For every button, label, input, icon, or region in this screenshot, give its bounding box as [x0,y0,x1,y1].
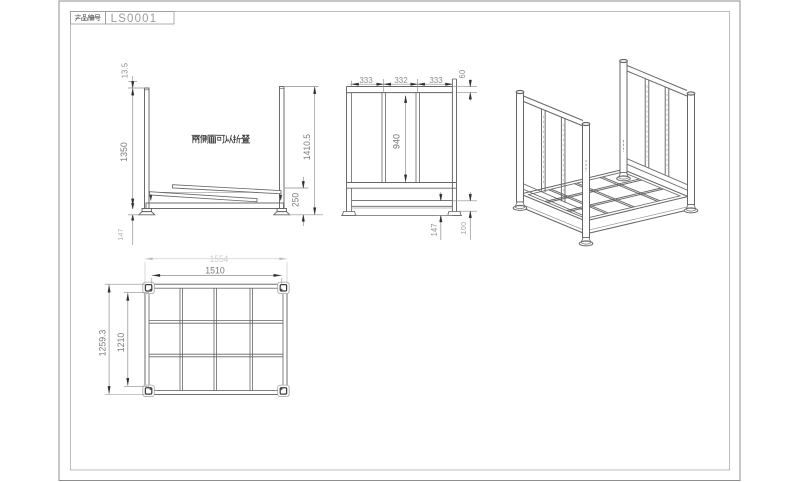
svg-text:1410.5: 1410.5 [302,134,312,160]
svg-text:13.5: 13.5 [120,63,129,79]
svg-text:1510: 1510 [205,265,224,275]
svg-text:250: 250 [290,193,300,207]
svg-text:60: 60 [458,69,467,78]
svg-text:147: 147 [430,223,439,236]
svg-text:1350: 1350 [119,142,129,162]
svg-text:940: 940 [391,134,401,149]
svg-text:333: 333 [429,75,443,85]
svg-text:332: 332 [394,75,408,85]
svg-text:1259.3: 1259.3 [97,330,107,357]
svg-text:100: 100 [459,222,468,235]
svg-text:1210: 1210 [116,333,126,352]
svg-text:1554: 1554 [210,254,229,264]
svg-text:333: 333 [359,75,373,85]
svg-text:LS0001: LS0001 [111,10,158,24]
svg-text:147: 147 [117,228,125,240]
